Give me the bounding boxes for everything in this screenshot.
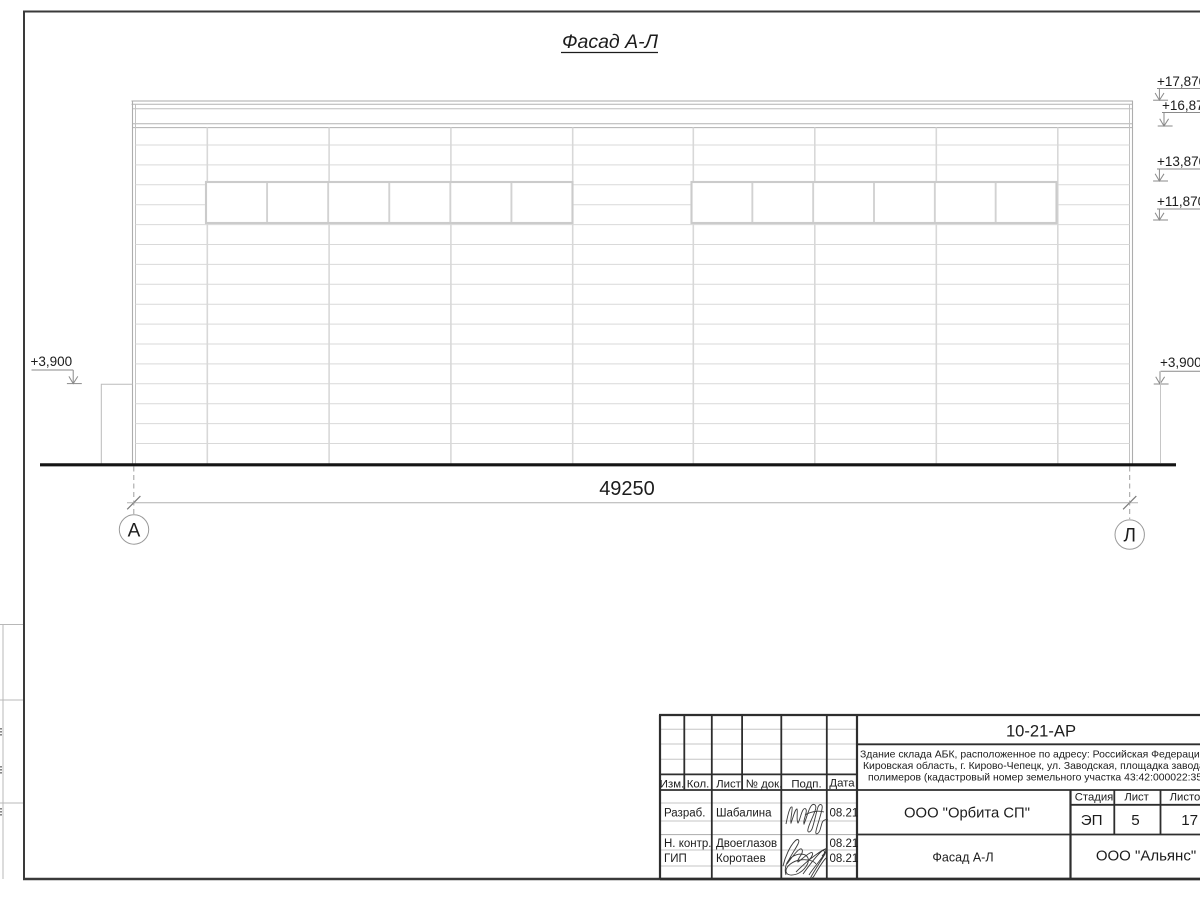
svg-text:5: 5: [1131, 812, 1139, 829]
svg-text:Изм.: Изм.: [660, 778, 684, 790]
svg-text:ООО "Альянс": ООО "Альянс": [1096, 848, 1196, 865]
svg-text:Н. контр.: Н. контр.: [664, 838, 711, 850]
svg-text:+17,870: +17,870: [1157, 74, 1200, 89]
svg-text:49250: 49250: [599, 478, 655, 500]
svg-text:Фасад А-Л: Фасад А-Л: [562, 31, 659, 53]
svg-text:Лист: Лист: [1124, 791, 1149, 803]
svg-text:полимеров (кадастровый номер з: полимеров (кадастровый номер земельного …: [868, 773, 1200, 784]
svg-text:+3,900: +3,900: [1160, 355, 1200, 370]
svg-text:+11,870: +11,870: [1157, 194, 1200, 209]
svg-text:Здание склада АБК, расположенн: Здание склада АБК, расположенное по адре…: [860, 750, 1200, 761]
svg-text:+3,900: +3,900: [31, 354, 73, 369]
svg-text:17: 17: [1181, 812, 1198, 829]
svg-text:ЭП: ЭП: [1081, 812, 1103, 829]
svg-text:08.21: 08.21: [830, 838, 859, 850]
svg-text:№ док.: № док.: [746, 778, 783, 790]
svg-text:08.21: 08.21: [830, 853, 859, 865]
svg-text:ООО "Орбита СП": ООО "Орбита СП": [904, 805, 1030, 821]
svg-text:08.21: 08.21: [830, 808, 859, 820]
svg-text:Разраб.: Разраб.: [664, 808, 705, 820]
svg-text:Лист: Лист: [716, 778, 742, 790]
svg-text:+13,870: +13,870: [1157, 154, 1200, 169]
svg-text:Кировская область, г. Кирово-Ч: Кировская область, г. Кирово-Чепецк, ул.…: [863, 760, 1200, 772]
svg-text:Л: Л: [1123, 525, 1135, 546]
svg-text:10-21-АР: 10-21-АР: [1006, 721, 1076, 740]
svg-text:Листов: Листов: [1170, 791, 1200, 803]
svg-text:Шабалина: Шабалина: [716, 808, 772, 820]
svg-text:+16,870: +16,870: [1162, 98, 1200, 113]
svg-text:Коротаев: Коротаев: [716, 853, 766, 865]
svg-text:А: А: [128, 520, 141, 541]
svg-text:Двоеглазов: Двоеглазов: [716, 838, 777, 850]
svg-text:Дата: Дата: [829, 778, 855, 790]
svg-text:Фасад А-Л: Фасад А-Л: [932, 850, 993, 864]
svg-text:Стадия: Стадия: [1075, 791, 1114, 803]
svg-text:ГИП: ГИП: [664, 853, 687, 865]
svg-text:Подп.: Подп.: [791, 778, 821, 790]
svg-text:Кол.: Кол.: [687, 778, 710, 790]
